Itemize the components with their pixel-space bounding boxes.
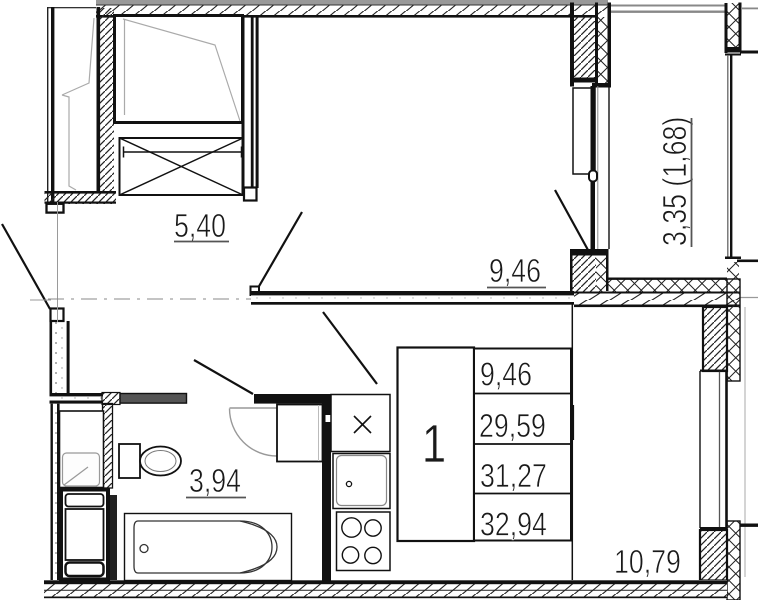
- svg-text:29,59: 29,59: [479, 408, 546, 444]
- svg-text:3,94: 3,94: [189, 463, 241, 499]
- svg-text:10,79: 10,79: [614, 544, 681, 580]
- svg-text:9,46: 9,46: [489, 253, 541, 289]
- svg-text:9,46: 9,46: [480, 357, 532, 393]
- svg-text:1: 1: [422, 415, 446, 474]
- svg-text:3,35 (1,68): 3,35 (1,68): [657, 117, 693, 246]
- svg-text:32,94: 32,94: [480, 507, 547, 543]
- svg-text:31,27: 31,27: [480, 458, 547, 494]
- svg-text:5,40: 5,40: [174, 208, 226, 244]
